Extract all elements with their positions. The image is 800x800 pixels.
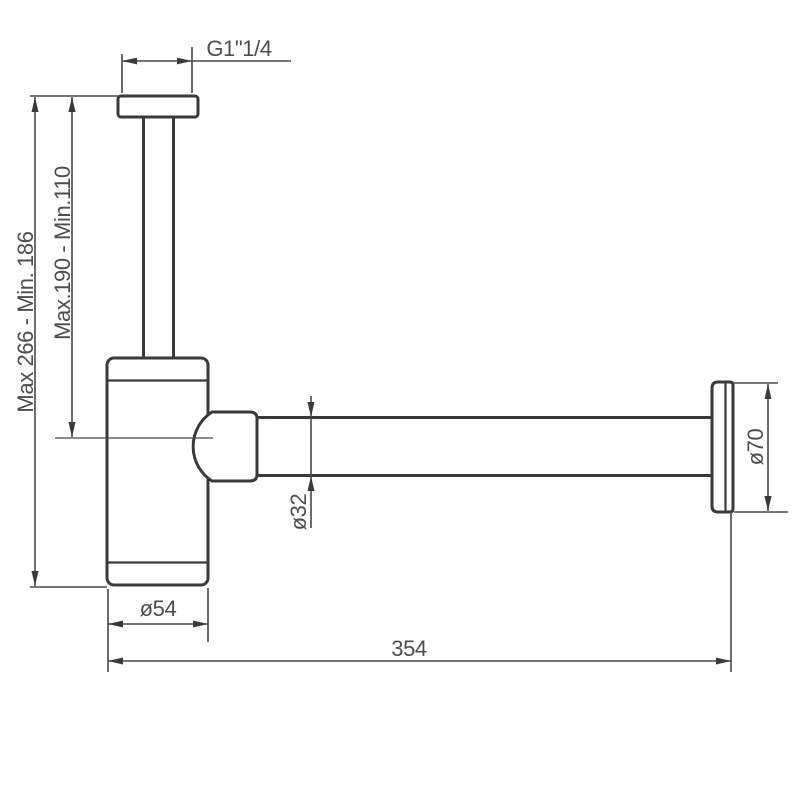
trap-body [107,358,208,585]
dim-label-body-diameter: ø54 [140,596,177,621]
dim-arrow-right-icon [177,58,192,65]
dim-arrow-left-icon [122,58,137,65]
dim-label-thread: G1"1/4 [206,36,272,61]
dim-label-flange-diameter: ø70 [743,428,768,465]
dim-arrow-down-icon [765,496,772,511]
dim-arrow-down-icon [32,571,39,586]
dim-arrow-up-icon [69,97,76,112]
inlet-nut [118,96,198,117]
dim-arrow-right-icon [716,658,731,665]
outlet-union-nut [193,412,257,481]
fixture [55,96,733,585]
dim-label-length: 354 [391,636,427,661]
dim-arrow-up-icon [308,476,315,491]
dim-arrow-up-icon [765,384,772,399]
dim-flange-diameter: ø70 [734,383,788,512]
dim-label-pipe-diameter: ø32 [286,493,311,530]
bottle-trap-technical-drawing: G1"1/4 Max 266 - Min. 186 Max.190 - Min.… [0,0,800,800]
dim-arrow-left-icon [108,621,123,628]
dim-arrow-down-icon [308,402,315,417]
wall-flange [712,382,733,512]
dim-label-overall-height: Max 266 - Min. 186 [13,231,38,412]
dim-arrow-left-icon [108,658,123,665]
dim-arrow-up-icon [32,97,39,112]
dim-thread: G1"1/4 [122,36,291,93]
dim-inlet-height: Max.190 - Min.110 [50,97,76,437]
drawing-canvas: G1"1/4 Max 266 - Min. 186 Max.190 - Min.… [0,0,800,800]
dim-arrow-down-icon [69,422,76,437]
dim-arrow-right-icon [193,621,208,628]
dim-label-inlet-height: Max.190 - Min.110 [50,166,75,340]
